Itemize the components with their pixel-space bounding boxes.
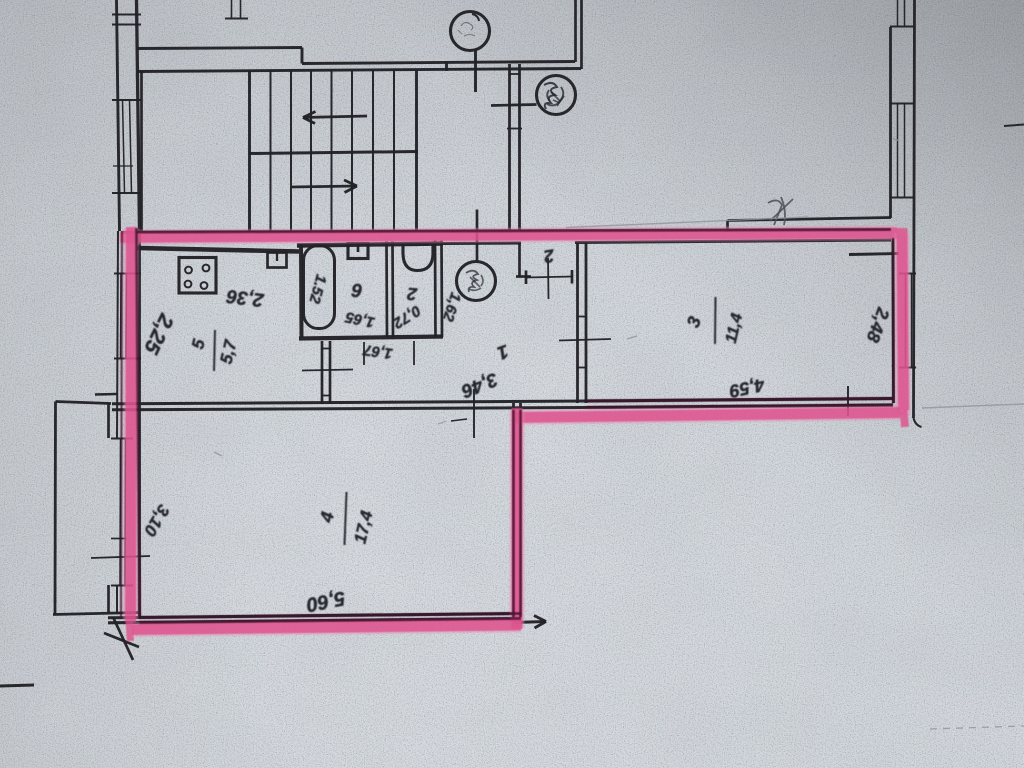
svg-text:2: 2 — [406, 284, 419, 305]
